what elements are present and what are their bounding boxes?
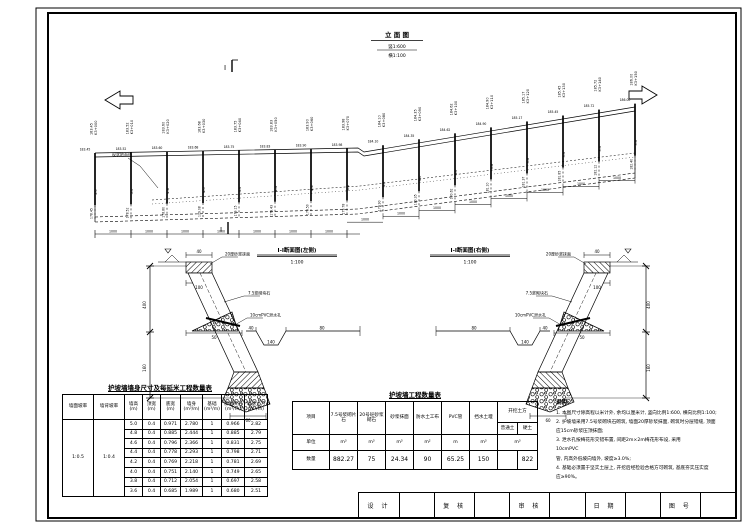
post-cap-elev-label: 185.45 xyxy=(548,110,559,114)
wall-table-header: 基础 (m³/m) xyxy=(203,395,222,420)
section-label-plaster: 20厚砂浆抹面 xyxy=(225,251,250,257)
section-label-dim_drain: 50 xyxy=(211,335,217,340)
section-label-dim_g3: 80 xyxy=(471,326,477,331)
wall-table-cell: 4.2 xyxy=(125,458,143,468)
bay-dim-label: 1000 xyxy=(505,194,513,198)
bay-dim-label: 1000 xyxy=(217,230,225,234)
titleblock-number-label: 图 号 xyxy=(660,493,700,517)
post-top-elev-label: 184.62 xyxy=(450,103,454,115)
section-label-dim_g3: 80 xyxy=(319,326,325,331)
post-top-elev-label: 185.45 xyxy=(558,86,562,98)
post-top-elev-label: 183.98 xyxy=(342,119,346,131)
section-label-dim_g2: 140 xyxy=(521,340,529,345)
section-label-dim_h2: 160 xyxy=(142,364,147,372)
bay-dim-label: 1000 xyxy=(361,218,369,222)
post-station-label: K3+140 xyxy=(598,76,602,91)
qty-unit: m xyxy=(442,435,470,451)
wall-table-cell: 2.71 xyxy=(245,448,268,458)
bay-dim-label: 1000 xyxy=(397,212,405,216)
quantity-table: 项目 7.5号浆砌片石 20号砼砂浆砌石 砂浆抹面 防水土工布 PVC管 挡水土… xyxy=(292,401,538,470)
qty-value: 24.34 xyxy=(386,451,414,470)
post-cap-elev-label: 183.90 xyxy=(296,144,307,148)
wall-table-cell: 4.8 xyxy=(125,429,143,439)
note-line: 1. 本图尺寸除高程以米计外, 余均以厘米计, 竖向比例1:600, 横向比例1… xyxy=(556,409,736,418)
post-height-label: 3.6 xyxy=(598,145,602,151)
titleblock-check-value xyxy=(474,493,509,517)
wall-table-cell: 2.293 xyxy=(181,448,203,458)
qty-value: 822 xyxy=(518,451,538,470)
wall-table-cell: 0.4 xyxy=(143,429,161,439)
wall-table-cell: 4.0 xyxy=(125,467,143,477)
post-height-label: 3.6 xyxy=(562,151,566,157)
post-station-label: K3+000 xyxy=(94,120,98,135)
post-cap-elev-label: 183.60 xyxy=(152,146,163,150)
post-top-elev-label: 183.45 xyxy=(90,123,94,135)
wall-table-cell: 2.054 xyxy=(181,477,203,487)
post-height-label: 4.0 xyxy=(418,175,422,181)
section-label-dim_g2: 140 xyxy=(267,340,275,345)
post-height-label: 4.0 xyxy=(454,169,458,175)
wall-table-header: 墙身 (m³/m) xyxy=(181,395,203,420)
post-cap-elev-label: 183.75 xyxy=(224,145,235,149)
post-base-elev-label: 179.08 xyxy=(198,206,202,217)
wall-table-cell: 1 xyxy=(203,429,222,439)
post-height-label: 4.2 xyxy=(382,181,386,187)
note-line: 10cmPVC xyxy=(556,445,736,454)
wall-table-header: 墙面坡率 xyxy=(63,395,94,420)
titleblock-review-value xyxy=(549,493,584,517)
bay-dim-label: 1000 xyxy=(109,230,117,234)
section-mark-top: Ⅰ xyxy=(224,64,226,72)
wall-table-cell: 4.6 xyxy=(125,439,143,449)
wall-table-cell: 0.781 xyxy=(222,458,245,468)
post-cap-elev-label: 183.45 xyxy=(80,148,91,152)
title-block: 设 计 复 核 审 核 日 期 图 号 xyxy=(358,492,736,518)
section-label-masonry: 7.5浆砌块石 xyxy=(526,290,548,296)
wall-table-header: 墙基土方 (m³/m) xyxy=(245,395,268,420)
post-height-label: 3.8 xyxy=(490,163,494,169)
post-station-label: K3+150 xyxy=(634,70,638,85)
post-station-label: K3+130 xyxy=(562,82,566,97)
section-label-dim_g1: 40 xyxy=(248,326,254,331)
wall-table-cell: 2.82 xyxy=(245,420,268,430)
post-station-label: K3+080 xyxy=(382,112,386,127)
post-top-elev-label: 184.10 xyxy=(378,115,382,127)
qty-col-name: 7.5号浆砌片石 xyxy=(330,402,358,435)
left-arrow-icon xyxy=(105,91,133,109)
qty-row-label-unit: 单位 xyxy=(293,435,330,451)
qty-table-block: 护坡墙工程数量表 项目 7.5号浆砌片石 20号砼砂浆砌石 砂浆抹面 防水土工布… xyxy=(292,389,538,470)
wall-table-cell: 2.218 xyxy=(181,458,203,468)
wall-table-header: 墙背坡率 xyxy=(94,395,125,420)
post-base-elev-label: 179.90 xyxy=(378,200,382,211)
bay-dim-label: 1000 xyxy=(289,230,297,234)
post-station-label: K3+100 xyxy=(454,100,458,115)
post-cap-elev-label: 184.62 xyxy=(440,128,451,132)
post-base-elev-label: 179.78 xyxy=(342,204,346,215)
post-top-elev-label: 183.83 xyxy=(270,120,274,132)
wall-table-cell: 0.4 xyxy=(143,467,161,477)
qty-col-name: 防水土工布 xyxy=(414,402,442,435)
wall-table-cell: 2.444 xyxy=(181,429,203,439)
post-height-label: 4.4 xyxy=(310,185,314,191)
titleblock-check-label: 复 核 xyxy=(434,493,474,517)
wall-table-header: 墙高 (m) xyxy=(125,395,143,420)
post-station-label: K3+010 xyxy=(130,119,134,134)
post-height-label: 4.4 xyxy=(274,185,278,191)
wall-table-cell: 2.79 xyxy=(245,429,268,439)
post-top-elev-label: 185.72 xyxy=(594,80,598,92)
bay-dim-label: 1000 xyxy=(145,230,153,234)
post-top-elev-label: 183.90 xyxy=(306,119,310,131)
post-cap-elev-label: 185.72 xyxy=(584,104,595,108)
wall-table-cell: 1.989 xyxy=(181,487,203,497)
post-base-elev-label: 181.85 xyxy=(558,171,562,182)
wall-table-title: 护坡墙墙身尺寸及每延米工程数量表 xyxy=(62,382,258,392)
bay-dim-label: 1000 xyxy=(253,230,261,234)
post-cap-elev-label: 184.90 xyxy=(476,122,487,126)
note-line: 应≥90%。 xyxy=(556,473,736,482)
qty-col-name: 20号砼砂浆砌石 xyxy=(358,402,386,435)
wall-table-cell: 0.712 xyxy=(161,477,181,487)
wall-table-cell: 3.6 xyxy=(125,487,143,497)
wall-table-cell: 0.778 xyxy=(161,448,181,458)
qty-row-label-qty: 数量 xyxy=(293,451,330,470)
wall-dimensions-table: 墙面坡率墙背坡率墙高 (m)顶宽 (m)底宽 (m)墙身 (m³/m)基础 (m… xyxy=(62,394,268,497)
wall-table-cell: 0.4 xyxy=(143,477,161,487)
wall-table-cell: 1 xyxy=(203,477,222,487)
wall-table-cell: 0.4 xyxy=(143,458,161,468)
section-label-weep: 10cmPVC泄水孔 xyxy=(515,312,546,318)
qty-subcol-soil: 普通土 xyxy=(498,423,518,435)
wall-table-cell: 2.366 xyxy=(181,439,203,449)
wall-face-slope: 1:0.5 xyxy=(63,420,94,497)
section-label-plaster: 20厚砂浆抹面 xyxy=(546,251,571,257)
wall-table-cell: 1 xyxy=(203,448,222,458)
post-cap-elev-label: 183.52 xyxy=(116,147,127,151)
post-cap-elev-label: 186.00 xyxy=(620,98,631,102)
qty-col-name: PVC管 xyxy=(442,402,470,435)
post-height-label: 4.2 xyxy=(346,185,350,191)
note-line: 2. 护坡墙采用7.5号浆砌块石砌筑, 墙面20厚砂浆抹面, 砌筑时分层错缝, … xyxy=(556,418,736,427)
wall-table-cell: 2.51 xyxy=(245,487,268,497)
titleblock-design-value xyxy=(399,493,434,517)
post-cap-elev-label: 183.83 xyxy=(260,144,271,148)
wall-table-cell: 0.680 xyxy=(222,487,245,497)
wall-table-cell: 0.971 xyxy=(161,420,181,430)
section-label-dim_toe: 60 xyxy=(545,418,551,423)
wall-table-cell: 0.697 xyxy=(222,477,245,487)
post-base-elev-label: 181.37 xyxy=(522,177,526,188)
post-station-label: K3+120 xyxy=(526,88,530,103)
qty-unit: m³ xyxy=(358,435,386,451)
qty-value: 65.25 xyxy=(442,451,470,470)
post-height-label: 4.8 xyxy=(166,187,170,193)
qty-table-title: 护坡墙工程数量表 xyxy=(292,389,538,399)
wall-table-cell: 0.751 xyxy=(161,467,181,477)
section-titles: Ⅰ-Ⅰ断面图(左侧) 1:100 Ⅰ-Ⅰ断面图(右侧) 1:100 xyxy=(257,246,510,266)
left-section-title: Ⅰ-Ⅰ断面图(左侧) xyxy=(278,246,317,254)
qty-col-excavation: 开挖土方 xyxy=(498,402,538,423)
post-base-elev-label: 178.45 xyxy=(90,208,94,219)
section-label-dim_drain: 50 xyxy=(579,335,585,340)
note-line: 应15cm砂浆压顶抹面; xyxy=(556,427,736,436)
qty-unit: m³ xyxy=(386,435,414,451)
wall-table-cell: 4.4 xyxy=(125,448,143,458)
wall-table-header: 浆砌块石 (m³/m) xyxy=(222,395,245,420)
post-station-label: K3+090 xyxy=(418,106,422,121)
section-label-weep: 10cmPVC泄水孔 xyxy=(250,312,281,318)
post-station-label: K3+040 xyxy=(238,117,242,132)
section-label-dim_cap: 100 xyxy=(593,285,601,290)
post-base-elev-label: 180.62 xyxy=(450,188,454,199)
qty-unit: m² xyxy=(414,435,442,451)
section-label-dim_g1: 40 xyxy=(542,326,548,331)
elevation-scale-vertical: 竖1:600 xyxy=(388,43,406,50)
post-base-elev-label: 182.12 xyxy=(594,165,598,176)
notes-block: 说明: 1. 本图尺寸除高程以米计外, 余均以厘米计, 竖向比例1:600, 横… xyxy=(556,398,736,482)
post-base-elev-label: 178.52 xyxy=(126,207,130,218)
wall-table-cell: 0.685 xyxy=(161,487,181,497)
elevation-scale-horizontal: 横1:100 xyxy=(388,52,406,59)
post-base-elev-label: 182.40 xyxy=(630,159,634,170)
post-base-elev-label: 180.35 xyxy=(414,194,418,205)
wall-table-cell: 0.769 xyxy=(161,458,181,468)
wall-table-cell: 2.780 xyxy=(181,420,203,430)
post-base-elev-label: 181.10 xyxy=(486,183,490,194)
post-height-label: 3.8 xyxy=(526,157,530,163)
wall-table-cell: 1 xyxy=(203,420,222,430)
post-station-label: K3+020 xyxy=(166,118,170,133)
wall-table-cell: 0.885 xyxy=(161,429,181,439)
qty-unit: m³ xyxy=(498,435,538,451)
post-height-label: 5.0 xyxy=(94,189,98,195)
qty-value xyxy=(498,451,518,470)
post-cap-elev-label: 183.98 xyxy=(332,143,343,147)
wall-table-cell: 0.749 xyxy=(222,467,245,477)
wall-table-cell: 2.140 xyxy=(181,467,203,477)
wall-table-cell: 0.831 xyxy=(222,439,245,449)
post-station-label: K3+110 xyxy=(490,94,494,109)
post-cap-elev-label: 185.17 xyxy=(512,116,523,120)
right-section-title: Ⅰ-Ⅰ断面图(右侧) xyxy=(451,246,490,254)
post-height-label: 5.0 xyxy=(130,188,134,194)
post-height-label: 4.6 xyxy=(202,187,206,193)
wall-back-slope: 1:0.4 xyxy=(94,420,125,497)
wall-table-cell: 1 xyxy=(203,458,222,468)
qty-unit: m³ xyxy=(470,435,498,451)
drawing-sheet: 立 面 图 竖1:600 横1:100 Ⅰ Ⅰ 现状地面线 K3+000183.… xyxy=(0,0,749,530)
post-station-label: K3+070 xyxy=(346,115,350,130)
wall-table-header: 顶宽 (m) xyxy=(143,395,161,420)
post-station-label: K3+060 xyxy=(310,116,314,131)
bay-dim-label: 1000 xyxy=(577,182,585,186)
qty-value: 882.27 xyxy=(330,451,358,470)
post-base-elev-label: 179.50 xyxy=(306,204,310,215)
section-label-dim_h2: 160 xyxy=(646,364,651,372)
section-label-dim_h1: 400 xyxy=(646,301,651,309)
wall-table-cell: 0.966 xyxy=(222,420,245,430)
post-cap-elev-label: 183.68 xyxy=(188,146,199,150)
qty-row-label-item: 项目 xyxy=(293,402,330,435)
note-line: 3. 泄水孔按梅花形交错布置, 间距2m×2m梅花形布设, 采用 xyxy=(556,436,736,445)
wall-table-cell: 1 xyxy=(203,487,222,497)
titleblock-date-value xyxy=(625,493,660,517)
wall-table-cell: 2.58 xyxy=(245,477,268,487)
wall-table-cell: 2.69 xyxy=(245,458,268,468)
titleblock-design-label: 设 计 xyxy=(359,493,399,517)
post-base-elev-label: 178.80 xyxy=(162,207,166,218)
notes-lines: 1. 本图尺寸除高程以米计外, 余均以厘米计, 竖向比例1:600, 横向比例1… xyxy=(556,409,736,482)
wall-table-cell: 0.4 xyxy=(143,420,161,430)
wall-table-cell: 0.4 xyxy=(143,448,161,458)
section-label-masonry: 7.5浆砌块石 xyxy=(248,290,270,296)
bay-dim-label: 1000 xyxy=(433,206,441,210)
section-label-dim_top: 40 xyxy=(196,249,202,254)
bay-dim-label: 1000 xyxy=(541,188,549,192)
bay-dim-label: 1000 xyxy=(181,230,189,234)
note-line: 管, 内高外低坡向墙外, 坡度≥3.0%; xyxy=(556,455,736,464)
wall-table-header: 底宽 (m) xyxy=(161,395,181,420)
elevation-linework xyxy=(95,60,635,234)
post-top-elev-label: 185.17 xyxy=(522,92,526,104)
post-cap-elev-label: 184.35 xyxy=(404,134,415,138)
wall-table-cell: 5.0 xyxy=(125,420,143,430)
post-top-elev-label: 183.68 xyxy=(198,121,202,133)
section-label-dim_top: 40 xyxy=(594,249,600,254)
titleblock-date-label: 日 期 xyxy=(585,493,625,517)
qty-col-name: 砂浆抹面 xyxy=(386,402,414,435)
wall-table-cell: 0.796 xyxy=(161,439,181,449)
qty-col-name: 挡水土堰 xyxy=(470,402,498,435)
post-top-elev-label: 183.75 xyxy=(234,121,238,133)
flow-arrows xyxy=(105,86,657,109)
bay-dim-label: 1000 xyxy=(469,200,477,204)
post-station-label: K3+030 xyxy=(202,118,206,133)
post-station-label: K3+050 xyxy=(274,117,278,132)
note-line: 4. 基础必须置于坚实土层上, 开挖后经检验合格方可砌筑, 基底夯实压实度 xyxy=(556,464,736,473)
post-top-elev-label: 183.60 xyxy=(162,122,166,134)
left-section-scale: 1:100 xyxy=(291,260,304,266)
qty-subcol-hard: 硬土 xyxy=(518,423,538,435)
section-label-dim_cap: 100 xyxy=(195,285,203,290)
ground-line-label: 现状地面线 xyxy=(112,151,132,157)
notes-title: 说明: xyxy=(556,398,736,409)
qty-value: 150 xyxy=(470,451,498,470)
post-height-label: 3.6 xyxy=(634,139,638,145)
right-arrow-icon xyxy=(629,86,657,104)
post-height-label: 4.6 xyxy=(238,186,242,192)
qty-value: 90 xyxy=(414,451,442,470)
titleblock-review-label: 审 核 xyxy=(509,493,549,517)
post-cap-elev-label: 184.10 xyxy=(368,140,379,144)
post-top-elev-label: 186.00 xyxy=(630,74,634,86)
elevation-title-group: 立 面 图 竖1:600 横1:100 xyxy=(371,30,423,59)
wall-table-cell: 0.4 xyxy=(143,439,161,449)
section-label-dim_h1: 400 xyxy=(142,301,147,309)
bay-dim-label: 1000 xyxy=(325,230,333,234)
right-section-scale: 1:100 xyxy=(464,260,477,266)
post-top-elev-label: 184.35 xyxy=(414,109,418,121)
wall-table-cell: 2.75 xyxy=(245,439,268,449)
post-base-elev-label: 179.15 xyxy=(234,206,238,217)
wall-table-cell: 1 xyxy=(203,467,222,477)
bay-dim-label: 1000 xyxy=(613,176,621,180)
wall-table-cell: 0.4 xyxy=(143,487,161,497)
elevation-posts: K3+000183.45183.455.0178.451000K3+010183… xyxy=(80,70,638,238)
post-base-elev-label: 179.43 xyxy=(270,205,274,216)
wall-table-cell: 0.885 xyxy=(222,429,245,439)
wall-table-block: 护坡墙墙身尺寸及每延米工程数量表 墙面坡率墙背坡率墙高 (m)顶宽 (m)底宽 … xyxy=(62,382,258,497)
post-top-elev-label: 184.90 xyxy=(486,98,490,110)
wall-table-cell: 2.65 xyxy=(245,467,268,477)
titleblock-number-value xyxy=(700,493,735,517)
qty-value: 75 xyxy=(358,451,386,470)
wall-table-cell: 1 xyxy=(203,439,222,449)
elevation-title: 立 面 图 xyxy=(385,30,410,39)
post-top-elev-label: 183.52 xyxy=(126,122,130,134)
wall-table-cell: 0.798 xyxy=(222,448,245,458)
wall-table-cell: 3.8 xyxy=(125,477,143,487)
qty-unit: m³ xyxy=(330,435,358,451)
